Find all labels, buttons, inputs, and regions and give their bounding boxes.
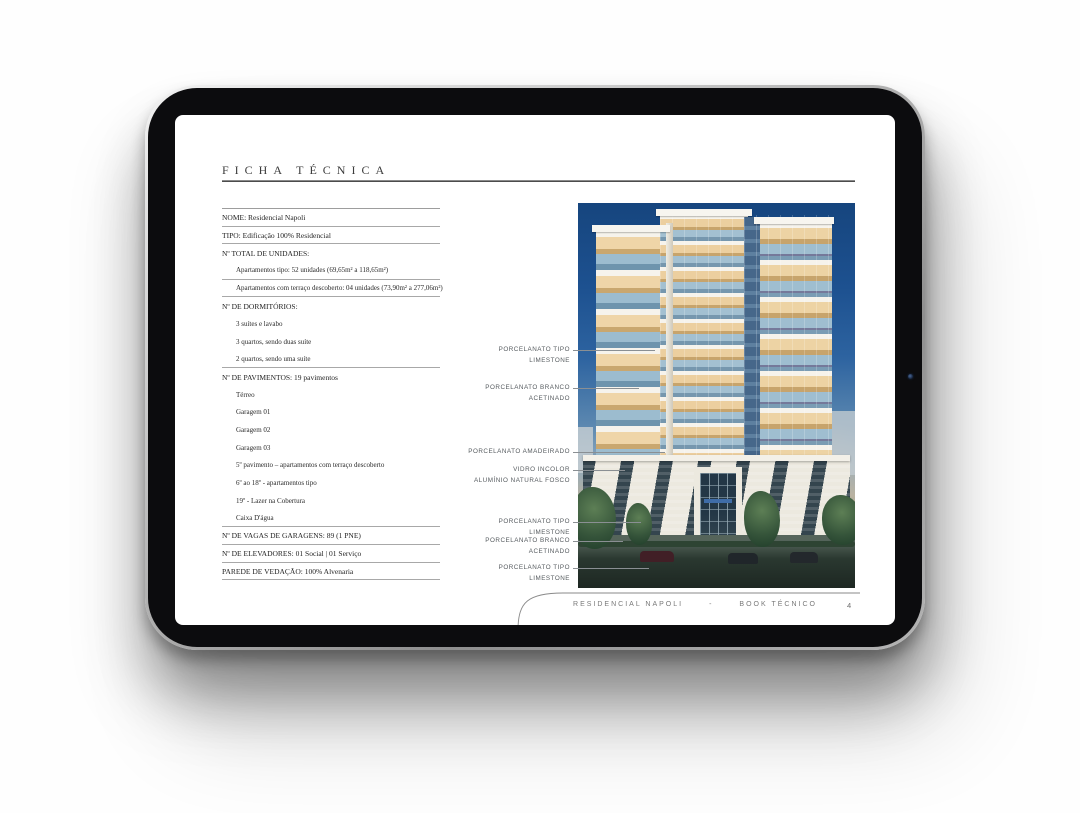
roof-slab [754,217,834,224]
spec-row: Nº DE PAVIMENTOS: 19 pavimentos [222,368,440,386]
material-callout: VIDRO INCOLORALUMÍNIO NATURAL FOSCO [420,464,570,486]
callout-leader-line [573,388,639,389]
spec-row: 19º - Lazer na Cobertura [222,492,440,510]
tree [744,491,780,547]
spec-row: Garagem 01 [222,404,440,422]
callout-label: PORCELANATO TIPOLIMESTONE [420,344,570,366]
spec-row: Apartamentos com terraço descoberto: 04 … [222,280,440,298]
spec-row: 5º pavimento – apartamentos com terraço … [222,457,440,475]
page-number: 4 [847,601,851,610]
spec-row: Térreo [222,386,440,404]
footer-separator: - [709,601,713,608]
building-center-tower [660,215,748,473]
callout-leader-line [573,470,625,471]
material-callout: PORCELANATO AMADEIRADO [420,446,570,457]
car [790,552,818,563]
roof-slab [656,209,752,216]
callout-label: PORCELANATO TIPOLIMESTONE [420,562,570,584]
title-divider [222,180,855,182]
material-callout: PORCELANATO TIPOLIMESTONE [420,562,570,584]
spec-row: 6º ao 18º - apartamentos tipo [222,474,440,492]
tablet-bezel: FICHA TÉCNICA NOME: Residencial NapoliTI… [148,88,922,647]
spec-row: PAREDE DE VEDAÇÃO: 100% Alvenaria [222,563,440,581]
callout-leader-line [573,350,655,351]
tree [626,503,652,545]
footer-project: RESIDENCIAL NAPOLI [573,601,683,608]
footer: RESIDENCIAL NAPOLI - BOOK TÉCNICO [555,601,835,608]
building-left-wing [596,231,666,465]
tablet-frame: FICHA TÉCNICA NOME: Residencial NapoliTI… [145,85,925,650]
callout-label: PORCELANATO AMADEIRADO [420,446,570,457]
entrance-mullions [700,473,736,538]
facade-pier [666,223,673,465]
podium-slab [583,455,850,461]
callout-leader-line [573,522,641,523]
spec-row: TIPO: Edificação 100% Residencial [222,227,440,245]
building-right-wing [760,223,832,468]
material-callout: PORCELANATO BRANCOACETINADO [420,382,570,404]
callout-label: PORCELANATO BRANCOACETINADO [420,382,570,404]
footer-doc-title: BOOK TÉCNICO [739,601,817,608]
entrance-sign [704,499,732,503]
spec-row: Nº DE DORMITÓRIOS: [222,297,440,315]
spec-row: NOME: Residencial Napoli [222,209,440,227]
callout-label: PORCELANATO BRANCOACETINADO [420,535,570,557]
building-render-image [578,203,855,588]
material-callout: PORCELANATO TIPOLIMESTONE [420,344,570,366]
spec-row: Nº DE VAGAS DE GARAGENS: 89 (1 PNE) [222,527,440,545]
spec-row: Nº TOTAL DE UNIDADES: [222,244,440,262]
spec-row: 3 suítes e lavabo [222,315,440,333]
spec-row: Garagem 03 [222,439,440,457]
spec-row: 2 quartos, sendo uma suíte [222,351,440,369]
page-title: FICHA TÉCNICA [222,163,390,178]
material-callout: PORCELANATO BRANCOACETINADO [420,535,570,557]
camera-icon [908,374,913,379]
callout-leader-line [573,452,665,453]
callout-label: VIDRO INCOLORALUMÍNIO NATURAL FOSCO [420,464,570,486]
callout-leader-line [573,541,623,542]
spec-row: Apartamentos tipo: 52 unidades (69,65m² … [222,262,440,280]
spec-row: Nº DE ELEVADORES: 01 Social | 01 Serviço [222,545,440,563]
roof-slab [592,225,670,232]
car [640,551,674,562]
car [728,553,758,564]
spec-row: Garagem 02 [222,421,440,439]
spec-row: 3 quartos, sendo duas suíte [222,333,440,351]
spec-row: Caixa D'água [222,510,440,528]
document-page: FICHA TÉCNICA NOME: Residencial NapoliTI… [175,115,895,625]
spec-list: NOME: Residencial NapoliTIPO: Edificação… [222,208,440,580]
callout-leader-line [573,568,649,569]
